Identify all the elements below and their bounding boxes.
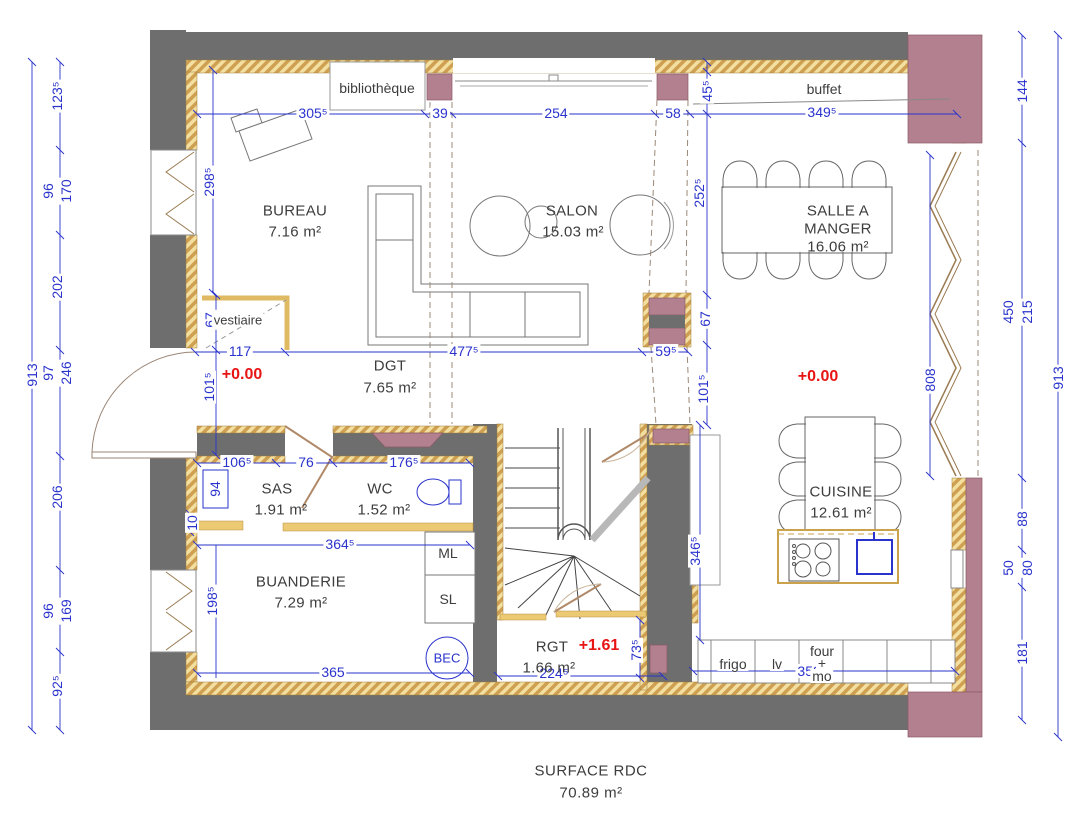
bec-label: BEC: [432, 652, 463, 665]
dim-label: 73⁵: [629, 637, 643, 662]
dim-label: 913: [1051, 364, 1065, 391]
room-area: 7.16 m²: [269, 225, 322, 240]
dim-label: 101⁵: [202, 370, 216, 403]
dim-label: 101⁵: [696, 372, 710, 405]
dim-label: 92⁵: [50, 673, 64, 698]
dim-label: 123⁵: [50, 79, 64, 112]
dim-label: 144: [1015, 77, 1029, 104]
fixture-label: ML: [436, 546, 459, 560]
dim-label: 254: [542, 106, 569, 120]
fixture-label: bibliothèque: [337, 81, 417, 95]
room-area: 12.61 m²: [810, 506, 872, 521]
dim-label: 176⁵: [387, 455, 420, 469]
floor-plan: 123⁵ 96 170 202 913 97 246 206 96 169 92…: [0, 0, 1082, 814]
level-mark: +0.00: [220, 367, 264, 383]
dim-label: 349⁵: [805, 105, 838, 119]
dim-label: 246: [59, 359, 73, 386]
room-name: BUREAU: [263, 204, 327, 219]
fixture-label: frigo: [717, 657, 748, 671]
dim-label: 10: [185, 513, 199, 533]
dim-label: 67: [698, 309, 712, 329]
dim-label: 477⁵: [447, 344, 480, 358]
dim-label: 96: [41, 601, 55, 621]
room-name: CUISINE: [810, 485, 873, 500]
dim-label: 913: [25, 361, 39, 388]
room-area: 1.52 m²: [358, 503, 411, 518]
post-core: [649, 315, 685, 328]
dim-label: 39: [430, 106, 450, 120]
kitchen-island: [778, 530, 898, 583]
dim-label: 198⁵: [205, 584, 219, 617]
room-name: RGT: [536, 640, 569, 655]
room-area: 15.03 m²: [542, 225, 604, 240]
dim-label: 106⁵: [220, 455, 253, 469]
dim-label: 169: [59, 597, 73, 624]
dim-label: 181: [1015, 639, 1029, 666]
dim-label: 206: [50, 483, 64, 510]
room-area: 7.65 m²: [364, 381, 417, 396]
dim-label: 59⁵: [653, 344, 678, 358]
plan-subtitle: 70.89 m²: [557, 786, 624, 801]
room-name: BUANDERIE: [256, 575, 346, 590]
dim-label: 252⁵: [692, 176, 706, 209]
level-mark: +0.00: [796, 369, 840, 385]
dim-label: 202: [50, 273, 64, 300]
dim-label: 88: [1015, 509, 1029, 529]
room-name: MANGER: [804, 222, 872, 237]
dim-label: 170: [59, 177, 73, 204]
dim-label: 45⁵: [700, 78, 714, 103]
dim-label: 808: [923, 366, 937, 393]
room-area: 1.91 m²: [255, 503, 308, 518]
dim-label: 117: [227, 344, 253, 358]
room-area: 7.29 m²: [275, 596, 328, 611]
dim-label: 94: [208, 479, 222, 499]
dim-label: 50: [1001, 558, 1015, 578]
room-name: DGT: [374, 359, 407, 374]
dim-label: 80: [1020, 558, 1034, 578]
dim-label: 305⁵: [296, 106, 329, 120]
dim-label: 450: [1001, 298, 1015, 325]
dim-label: 96: [41, 181, 55, 201]
fixture-label: mo: [810, 669, 833, 683]
fixture-label: vestiaire: [212, 314, 264, 327]
dim-label: 58: [663, 106, 683, 120]
dim-label: 364⁵: [323, 537, 356, 551]
dim-label: 298⁵: [202, 165, 216, 198]
dim-label: 97: [41, 363, 55, 383]
room-area: 1.66 m²: [523, 661, 576, 676]
plan-title: SURFACE RDC: [532, 764, 649, 779]
sink-icon: [857, 540, 892, 574]
room-area: 16.06 m²: [807, 240, 869, 255]
room-name: SAS: [262, 482, 293, 497]
dim-label: 76: [296, 455, 316, 469]
right-window: [951, 550, 963, 588]
room-name: SALLE A: [807, 204, 869, 219]
room-name: SALON: [546, 204, 598, 219]
fixture-label: lv: [770, 657, 784, 671]
floor-plan-drawing: [0, 0, 1082, 814]
fixture-label: buffet: [805, 82, 844, 96]
dim-label: 346⁵: [688, 534, 702, 567]
room-name: WC: [367, 482, 393, 497]
dim-label: 215: [1020, 298, 1034, 325]
dim-label: 365: [319, 665, 346, 679]
level-mark: +1.61: [577, 638, 621, 654]
fixture-label: SL: [437, 592, 458, 606]
